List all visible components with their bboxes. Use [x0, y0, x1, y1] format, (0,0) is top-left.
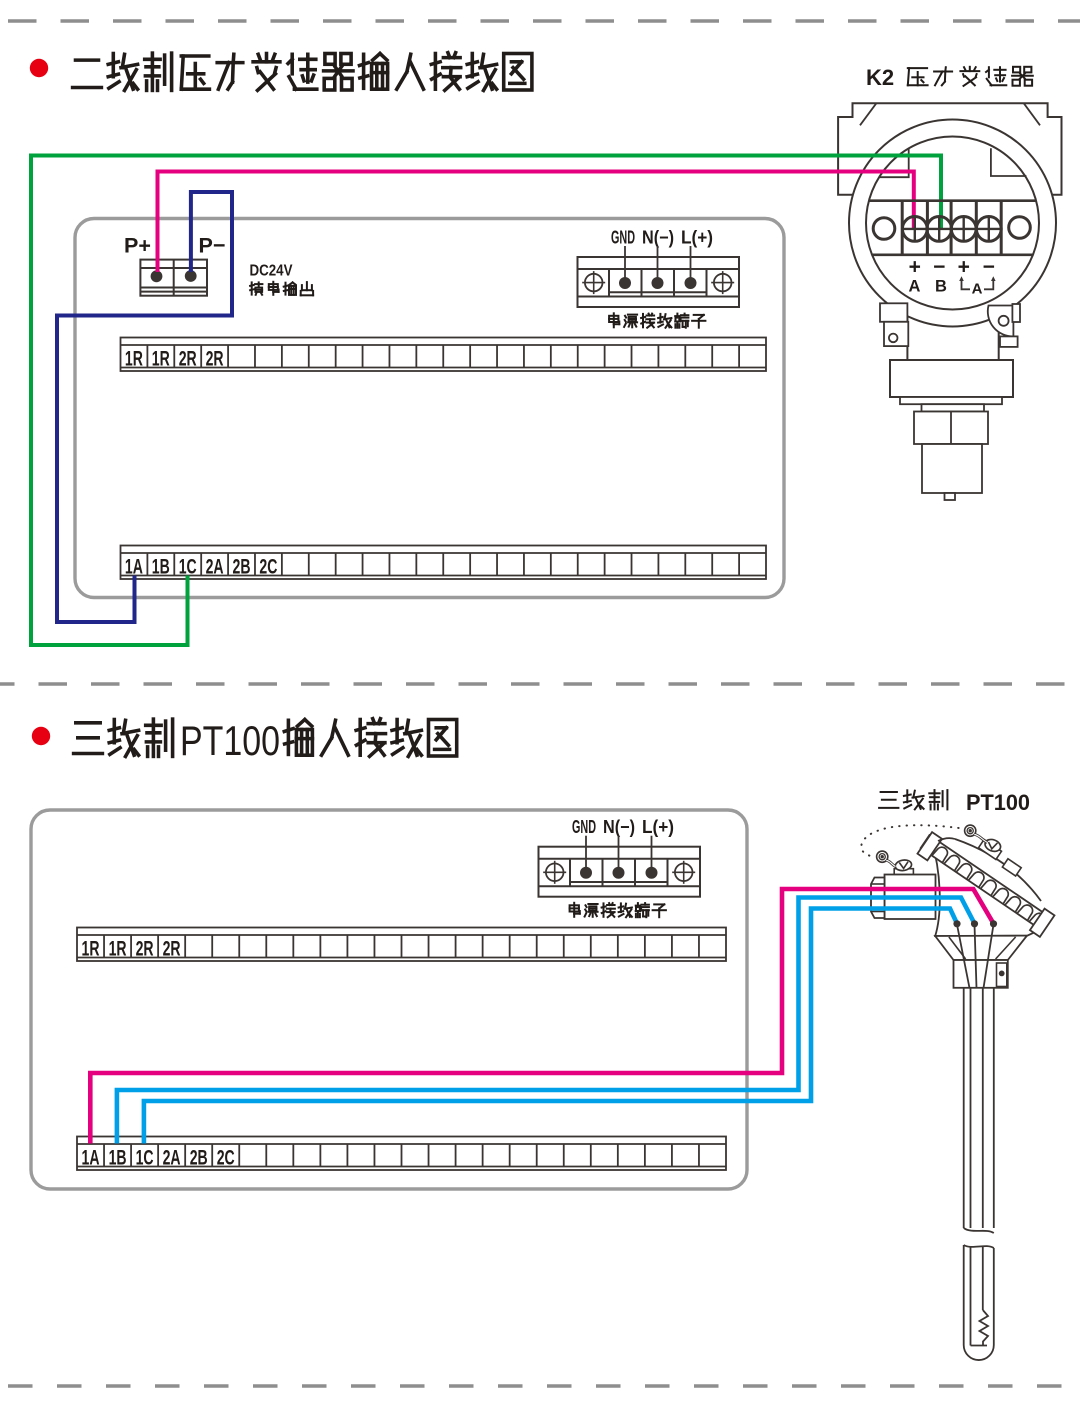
svg-text:K2: K2 [866, 65, 894, 90]
svg-text:DC24V: DC24V [250, 263, 293, 280]
svg-text:1C: 1C [136, 1147, 154, 1170]
svg-text:1A: 1A [125, 556, 143, 579]
svg-text:1B: 1B [109, 1147, 127, 1170]
svg-text:N(−): N(−) [642, 227, 674, 247]
svg-text:2A: 2A [206, 556, 224, 579]
svg-text:1R: 1R [109, 938, 127, 961]
svg-text:PT100: PT100 [966, 790, 1030, 815]
svg-text:L(+): L(+) [642, 817, 674, 837]
svg-text:+: + [958, 256, 970, 279]
svg-text:N(−): N(−) [603, 817, 635, 837]
svg-text:A: A [908, 278, 920, 296]
svg-text:2R: 2R [179, 348, 197, 371]
svg-text:P+: P+ [124, 234, 151, 258]
svg-text:2R: 2R [163, 938, 181, 961]
svg-text:1C: 1C [179, 556, 197, 579]
svg-text:2C: 2C [217, 1147, 235, 1170]
svg-text:B: B [935, 278, 947, 296]
svg-text:+: + [909, 256, 921, 279]
svg-text:2R: 2R [136, 938, 154, 961]
svg-text:L(+): L(+) [681, 227, 713, 247]
svg-text:2B: 2B [190, 1147, 208, 1170]
svg-text:1R: 1R [125, 348, 143, 371]
svg-text:−: − [983, 256, 995, 279]
svg-text:−: − [933, 256, 945, 279]
svg-text:GND: GND [572, 817, 596, 837]
svg-text:2B: 2B [233, 556, 251, 579]
svg-text:1R: 1R [82, 938, 100, 961]
svg-text:1R: 1R [152, 348, 170, 371]
svg-text:2R: 2R [206, 348, 224, 371]
svg-text:2A: 2A [163, 1147, 181, 1170]
svg-text:A: A [972, 281, 983, 298]
svg-text:GND: GND [611, 227, 635, 247]
svg-text:PT100: PT100 [180, 717, 280, 764]
svg-text:P−: P− [199, 234, 226, 258]
svg-text:1A: 1A [82, 1147, 100, 1170]
svg-text:2C: 2C [259, 556, 277, 579]
svg-text:1B: 1B [152, 556, 170, 579]
